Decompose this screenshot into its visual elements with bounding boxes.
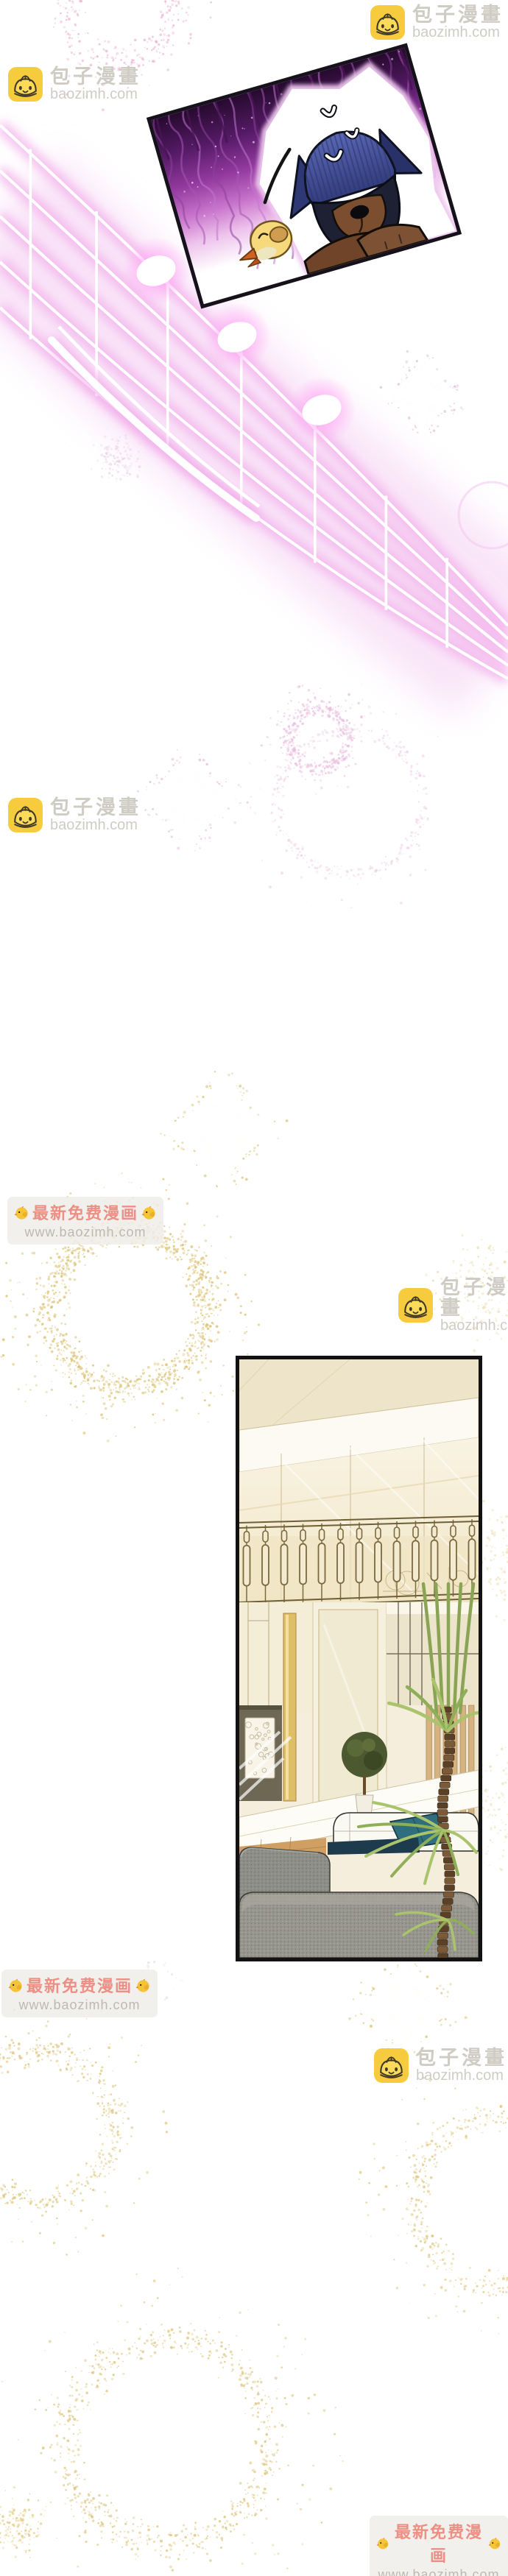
watermark-brand-domain: baozimh.com — [440, 1318, 508, 1333]
watermark-promo-left: 最新免费漫画 www.baozimh.com — [7, 1197, 163, 1245]
comic-panel-interior-terrace — [236, 1356, 482, 1961]
watermark-brand-domain: baozimh.com — [50, 818, 141, 832]
watermark-brand-name: 包子漫畫 — [50, 67, 141, 88]
watermark-promo-bottom-right: 最新免费漫画 www.baozimh.com — [370, 2516, 508, 2576]
room-panel-art — [239, 1359, 479, 1958]
watermark-promo-url: www.baozimh.com — [376, 2567, 501, 2576]
watermark-brand-name: 包子漫畫 — [416, 2048, 507, 2069]
baozi-app-icon — [7, 797, 43, 833]
watermark-promo-url: www.baozimh.com — [8, 1998, 151, 2013]
watermark-brand-name: 包子漫畫 — [50, 798, 141, 818]
watermark-baozimh-bottom-mid: 包子漫畫 baozimh.com — [373, 2048, 507, 2084]
watermark-baozimh-mid-left: 包子漫畫 baozimh.com — [7, 797, 141, 833]
watermark-baozimh-top-right: 包子漫畫 baozimh.com — [370, 4, 504, 40]
watermark-promo-label: 最新免费漫画 — [392, 2519, 484, 2566]
watermark-baozimh-top-left: 包子漫畫 baozimh.com — [7, 66, 141, 102]
baozi-app-icon — [398, 1287, 434, 1323]
watermark-promo-mid-left: 最新免费漫画 www.baozimh.com — [1, 1970, 158, 2017]
watermark-brand-domain: baozimh.com — [416, 2068, 507, 2083]
baozi-app-icon — [373, 2048, 409, 2084]
watermark-baozimh-right: 包子漫畫 baozimh.com — [398, 1278, 508, 1333]
chick-icon — [14, 1205, 29, 1220]
watermark-brand-domain: baozimh.com — [50, 87, 141, 102]
watermark-brand-name: 包子漫畫 — [412, 5, 504, 26]
watermark-promo-label: 最新免费漫画 — [27, 1973, 133, 1997]
watermark-promo-url: www.baozimh.com — [14, 1225, 157, 1240]
baozi-app-icon — [370, 4, 406, 40]
baozi-app-icon — [7, 66, 43, 102]
watermark-brand-domain: baozimh.com — [412, 25, 504, 40]
chick-icon — [141, 1205, 157, 1220]
chick-icon — [376, 2536, 389, 2551]
chick-icon — [135, 1978, 151, 1993]
watermark-brand-name: 包子漫畫 — [440, 1278, 508, 1318]
chick-icon — [488, 2536, 501, 2551]
chick-icon — [8, 1978, 24, 1993]
webtoon-page[interactable]: 包子漫畫 baozimh.com 包子漫畫 baozimh.com 包子漫畫 — [0, 0, 508, 2576]
watermark-promo-label: 最新免费漫画 — [32, 1200, 138, 1224]
